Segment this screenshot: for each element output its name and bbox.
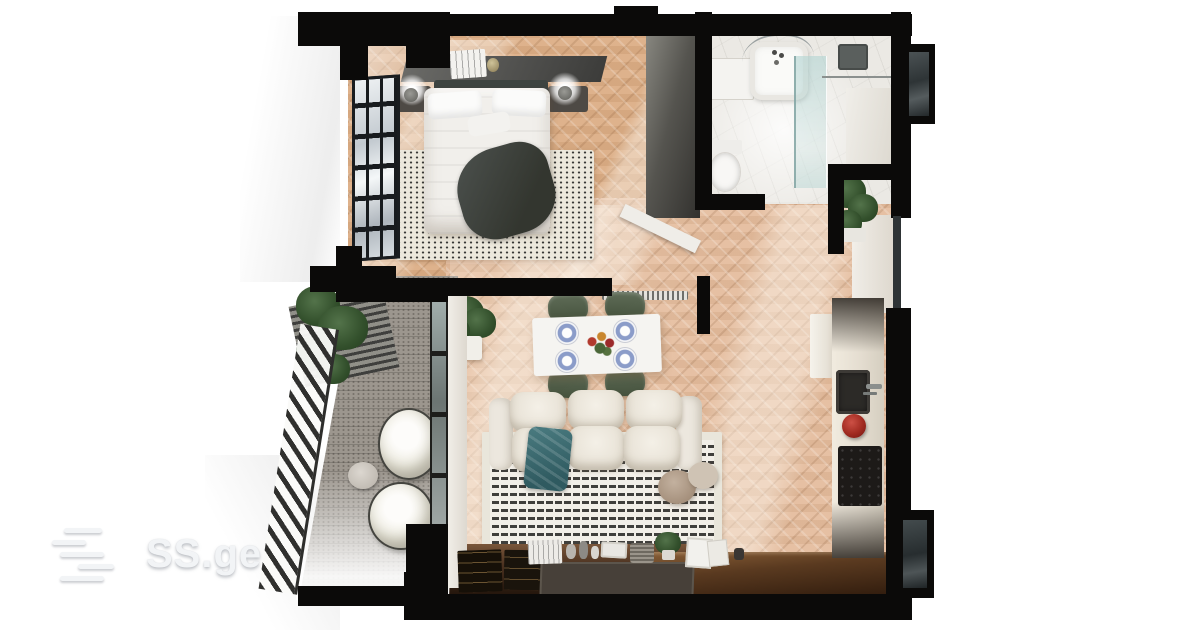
floorplan-render: SS.ge [0,0,1200,640]
console-vase [579,541,588,559]
sofa-back-cushion [626,390,682,430]
wall-top-tab [614,6,658,32]
wall-bathroom-bottom [695,194,765,210]
lamp-shade-left [404,88,418,102]
sofa-back-cushion [568,390,624,430]
upper-cabinet-shadow [832,298,884,352]
shower-pipe [822,76,892,78]
logo-bar [52,540,86,545]
wall-top-left-step [406,12,450,68]
balcony-door-frame [447,290,467,588]
wall-bedroom-bathroom-divider [695,12,712,210]
console-vase [591,546,599,559]
wardrobe [646,36,700,218]
console-tray-mat [539,562,694,598]
wall-balcony-top-b [336,280,448,302]
decor-bowl [487,58,499,72]
console-ornament [734,548,744,560]
sofa-seat-cushion [624,426,680,470]
kitchen-window-glass [903,520,927,588]
place-setting [556,322,578,344]
logo-bar [78,564,114,569]
balcony-glass-door [430,294,448,534]
wall-hall-stub [697,276,710,334]
red-kettle [842,414,866,438]
wall-balcony-living-block [406,524,448,618]
teal-throw-blanket [523,426,573,492]
toilet [709,152,741,192]
ssge-logo-text: SS.ge [146,532,262,577]
fridge [810,314,834,378]
console-basket [630,543,654,563]
cooktop [838,446,882,506]
exterior-shadow-left [240,16,340,282]
bathroom-window-glass [909,52,929,116]
console-vase [566,544,576,559]
wall-balcony-bottom [298,586,418,606]
shower-niche-wall [846,88,892,168]
kitchen-faucet [866,384,882,389]
console-tray [601,541,628,558]
balcony-side-table [348,462,378,489]
round-side-table [688,462,718,489]
book-stack [449,49,487,79]
sofa-seat-cushion [568,426,624,470]
lamp-shade-right [558,86,572,100]
ssge-logo-icon [52,528,126,581]
logo-bar [60,576,104,581]
entry-plant-pot [842,228,866,242]
place-setting [556,350,578,372]
console-plant-pot [662,550,675,560]
ssge-watermark: SS.ge [52,528,262,581]
console-picture-frame [707,539,730,567]
console-dark-panel [457,549,502,593]
window-strip-right [893,216,901,312]
flower-centerpiece [584,330,616,356]
place-setting [614,320,636,342]
logo-bar [64,528,102,533]
console-books [528,539,563,564]
lower-cabinet-shadow [832,502,884,558]
kitchen-sink [836,370,870,414]
place-setting [614,348,636,370]
shower-head [838,44,868,70]
bedroom-window [352,74,400,261]
logo-bar [60,552,104,557]
wall-bottom [438,594,912,620]
wall-window-post-top [340,12,368,80]
